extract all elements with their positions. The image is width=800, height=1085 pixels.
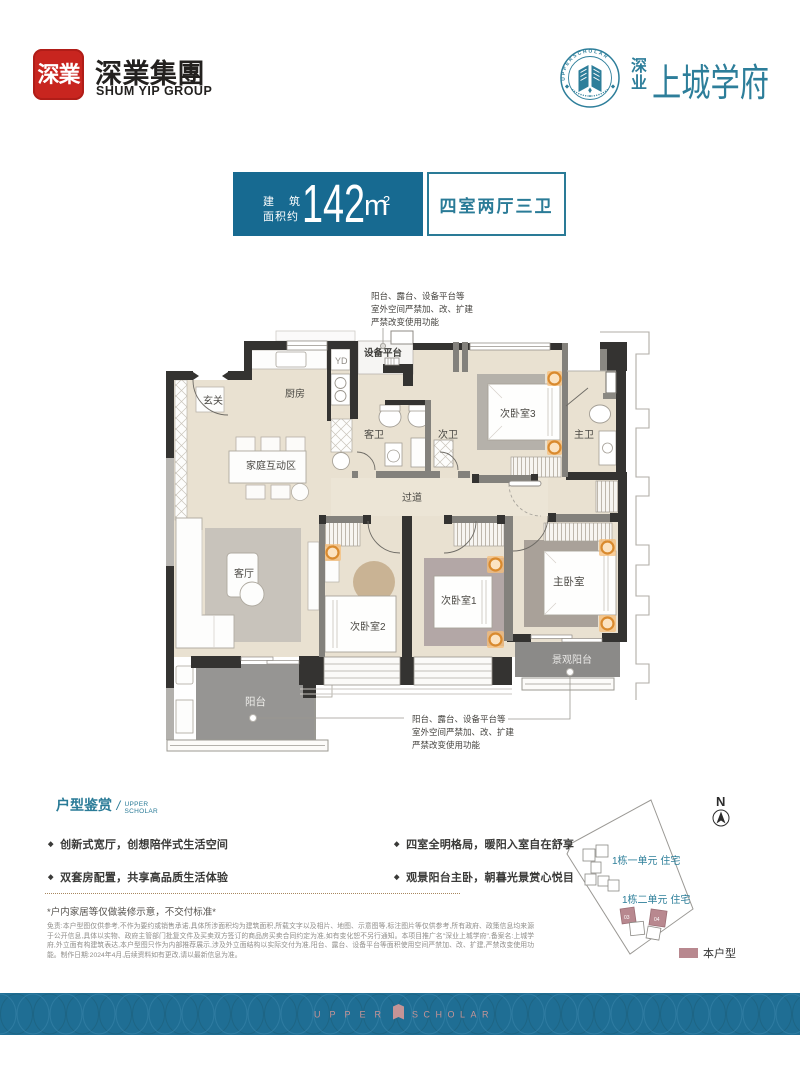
- svg-text:1栋二单元 住宅: 1栋二单元 住宅: [622, 893, 690, 906]
- svg-text:阳台、露台、设备平台等: 阳台、露台、设备平台等: [412, 714, 506, 724]
- svg-text:次卧室3: 次卧室3: [500, 407, 536, 420]
- svg-text:室外空间严禁加、改、扩建: 室外空间严禁加、改、扩建: [371, 304, 474, 314]
- svg-text:过道: 过道: [402, 491, 422, 504]
- svg-text:客卫: 客卫: [364, 428, 384, 441]
- svg-text:阳台、露台、设备平台等: 阳台、露台、设备平台等: [371, 291, 465, 301]
- svg-text:04: 04: [654, 917, 660, 923]
- svg-text:室外空间严禁加、改、扩建: 室外空间严禁加、改、扩建: [412, 727, 515, 737]
- svg-text:次卫: 次卫: [438, 428, 458, 441]
- svg-text:客厅: 客厅: [234, 567, 254, 580]
- svg-text:厨房: 厨房: [285, 387, 305, 400]
- svg-text:玄关: 玄关: [203, 394, 223, 407]
- svg-text:景观阳台: 景观阳台: [552, 653, 592, 666]
- svg-text:次卧室2: 次卧室2: [350, 620, 386, 633]
- svg-text:SCHOLAR: SCHOLAR: [412, 1010, 494, 1020]
- svg-text:YD: YD: [335, 356, 348, 366]
- svg-text:严禁改变使用功能: 严禁改变使用功能: [412, 740, 481, 750]
- svg-text:次卧室1: 次卧室1: [441, 594, 477, 607]
- svg-text:N: N: [716, 794, 725, 809]
- svg-text:UPPER: UPPER: [314, 1010, 390, 1020]
- svg-text:主卧室: 主卧室: [553, 575, 585, 588]
- svg-text:1栋一单元 住宅: 1栋一单元 住宅: [612, 854, 680, 867]
- svg-text:03: 03: [624, 915, 630, 921]
- svg-text:家庭互动区: 家庭互动区: [246, 459, 296, 472]
- svg-text:本户型: 本户型: [703, 946, 736, 960]
- svg-text:阳台: 阳台: [245, 695, 266, 708]
- svg-text:主卫: 主卫: [574, 429, 594, 441]
- svg-text:严禁改变使用功能: 严禁改变使用功能: [371, 317, 440, 327]
